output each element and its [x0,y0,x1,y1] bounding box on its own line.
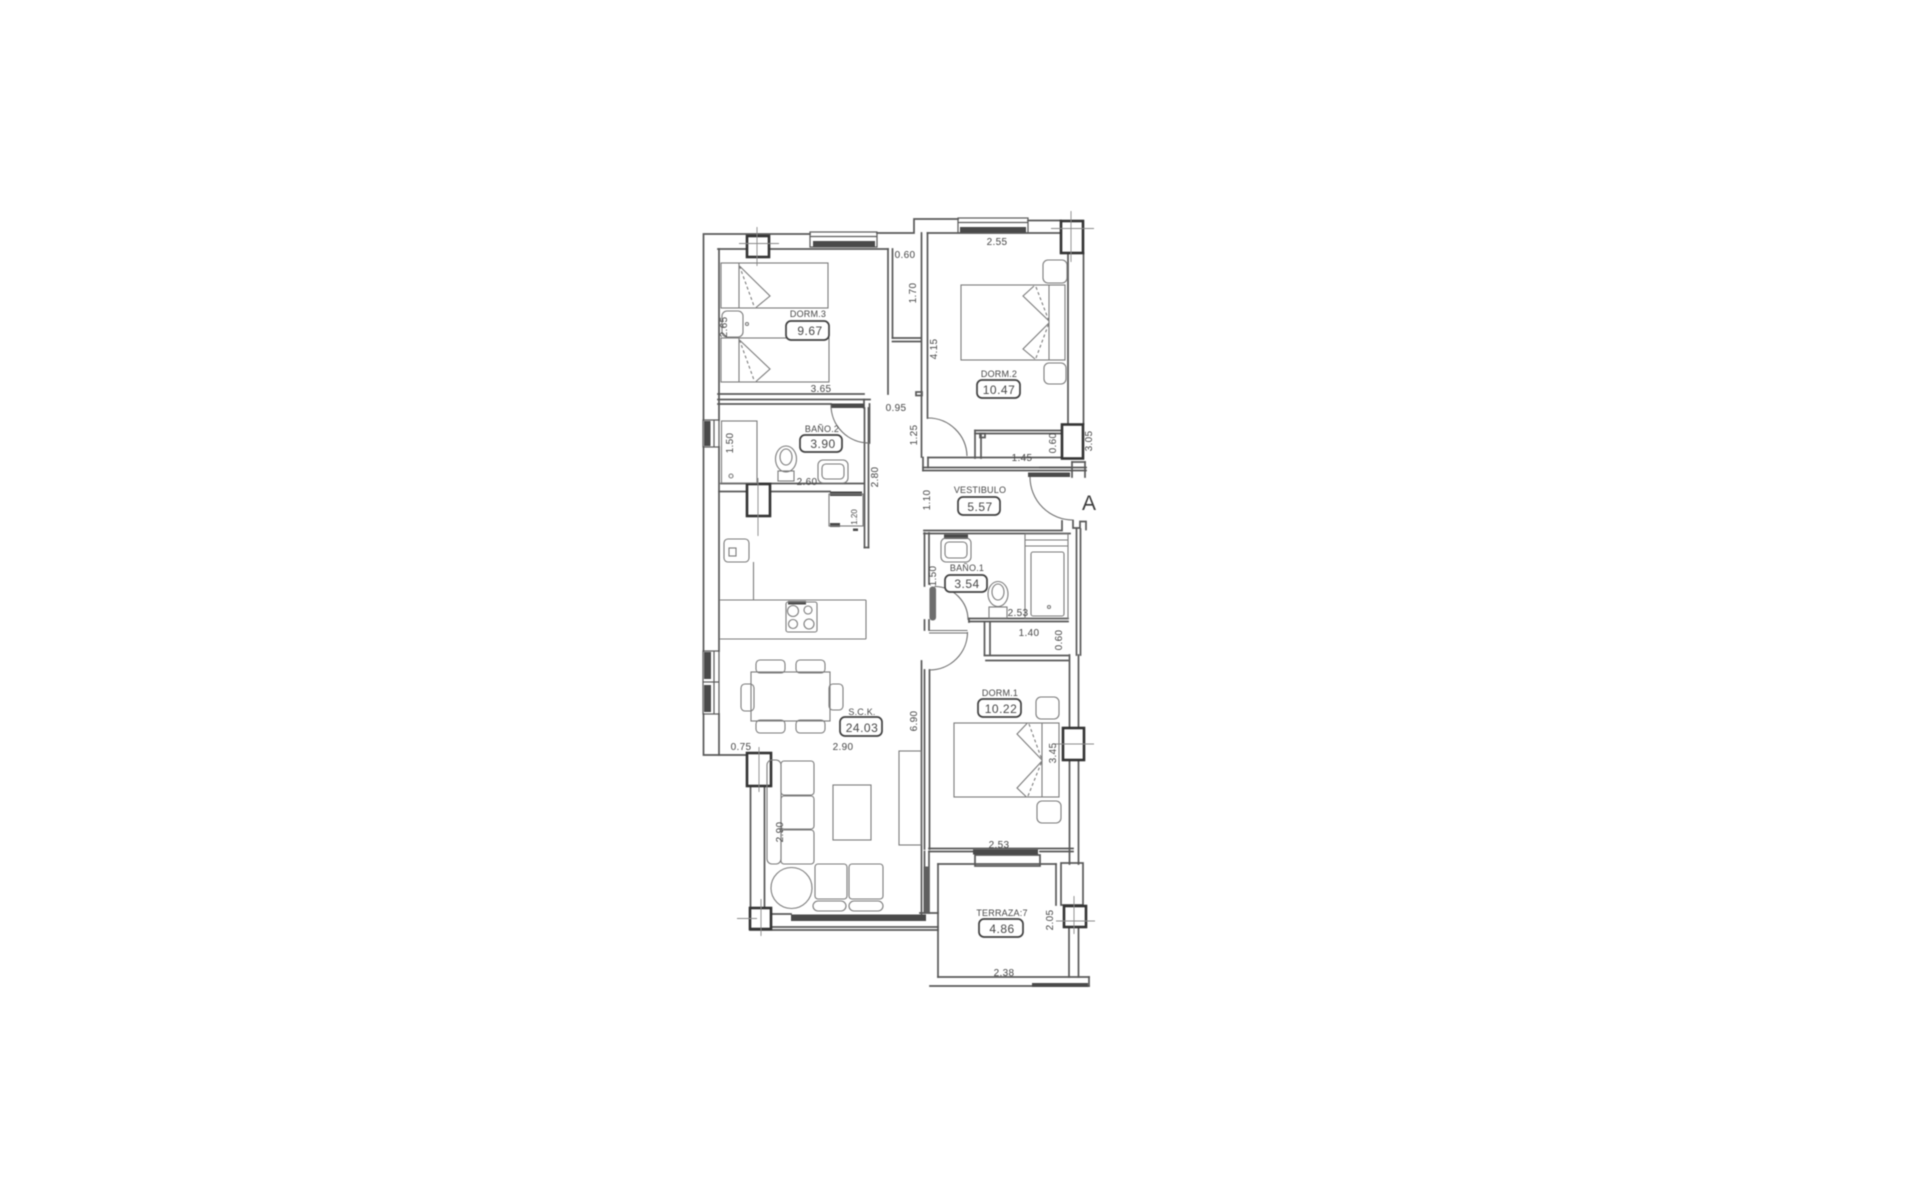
svg-text:1.10: 1.10 [922,490,933,511]
svg-text:9.67: 9.67 [797,324,822,338]
svg-text:2.53: 2.53 [1008,608,1029,619]
svg-text:2.53: 2.53 [989,840,1010,851]
svg-text:0.75: 0.75 [731,742,752,753]
svg-text:4.15: 4.15 [929,339,940,360]
svg-text:0.60: 0.60 [895,250,916,261]
svg-text:2.05: 2.05 [1045,910,1056,931]
svg-text:10.47: 10.47 [983,383,1016,397]
svg-text:2.65: 2.65 [719,317,730,338]
svg-text:0.95: 0.95 [886,403,907,414]
svg-text:BAÑO.2: BAÑO.2 [805,424,839,434]
svg-text:2.38: 2.38 [994,968,1015,979]
svg-text:2.90: 2.90 [833,742,854,753]
svg-text:1.50: 1.50 [725,433,736,454]
svg-text:1.40: 1.40 [1019,628,1040,639]
svg-text:3.45: 3.45 [1048,743,1059,764]
svg-text:2.60: 2.60 [797,477,818,488]
svg-text:24.03: 24.03 [846,721,879,735]
svg-text:3.90: 3.90 [810,437,835,451]
svg-text:2.55: 2.55 [987,237,1008,248]
svg-text:3.65: 3.65 [811,384,832,395]
svg-text:1.25: 1.25 [909,425,920,446]
svg-text:6.90: 6.90 [909,711,920,732]
svg-text:0.60: 0.60 [1054,630,1065,651]
svg-text:A: A [1082,492,1096,515]
svg-text:3.05: 3.05 [1084,431,1095,452]
svg-text:VESTIBULO: VESTIBULO [954,485,1006,495]
svg-text:2.80: 2.80 [870,467,881,488]
svg-text:1.50: 1.50 [928,566,939,587]
svg-text:1.70: 1.70 [908,283,919,304]
svg-text:DORM.1: DORM.1 [982,688,1018,698]
svg-text:S.C.K.: S.C.K. [848,707,875,717]
svg-text:1.20: 1.20 [850,509,859,525]
svg-text:BAÑO.1: BAÑO.1 [950,563,984,573]
svg-text:DORM.2: DORM.2 [981,369,1017,379]
svg-text:1.45: 1.45 [1012,453,1033,464]
svg-text:3.54: 3.54 [954,577,979,591]
svg-text:2.90: 2.90 [775,822,786,843]
svg-text:10.22: 10.22 [985,702,1018,716]
svg-text:5.57: 5.57 [967,500,992,514]
svg-text:DORM.3: DORM.3 [790,309,826,319]
svg-text:0.60: 0.60 [1048,433,1059,454]
svg-text:4.86: 4.86 [989,922,1014,936]
svg-text:TERRAZA:7: TERRAZA:7 [976,908,1027,918]
